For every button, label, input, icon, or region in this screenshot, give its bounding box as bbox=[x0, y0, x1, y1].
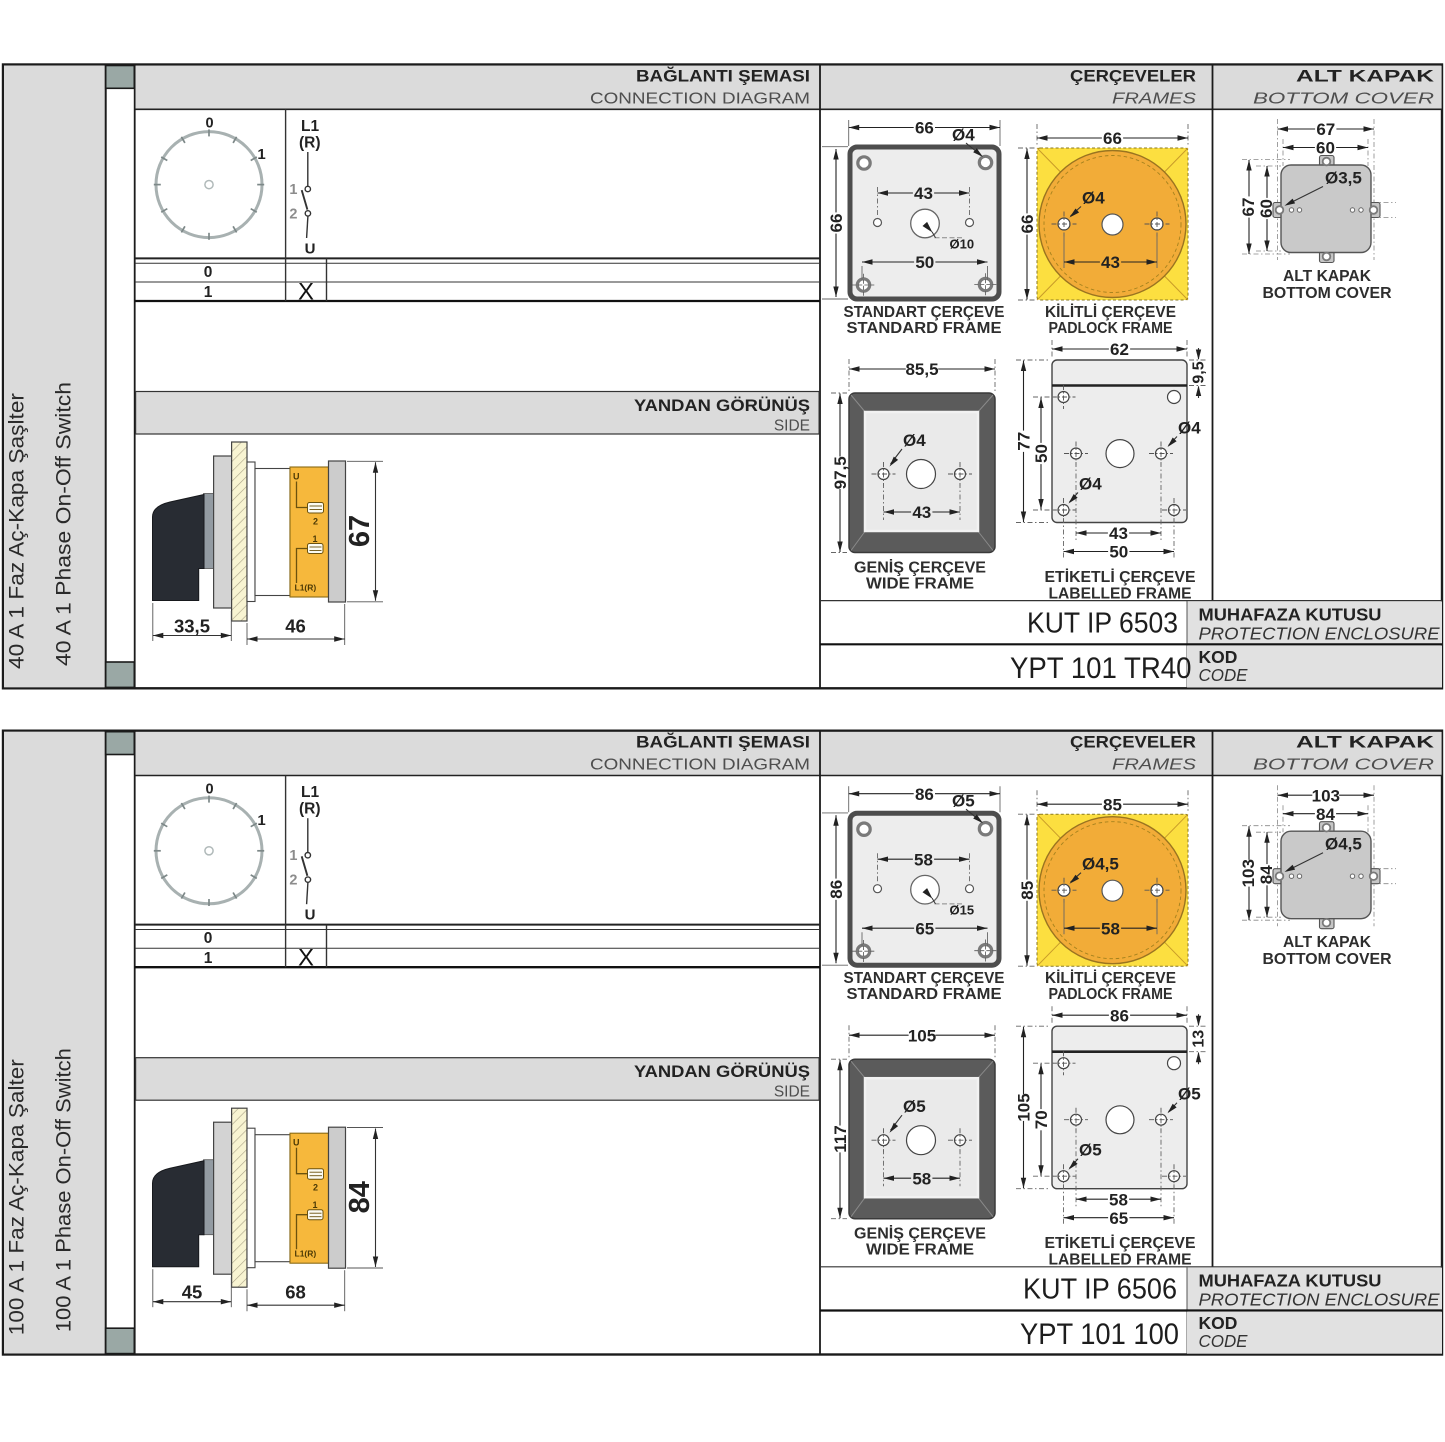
svg-text:YANDAN GÖRÜNÜŞ: YANDAN GÖRÜNÜŞ bbox=[634, 1062, 810, 1081]
svg-text:103: 103 bbox=[1312, 786, 1340, 805]
svg-text:GENİŞ ÇERÇEVE: GENİŞ ÇERÇEVE bbox=[854, 559, 986, 577]
svg-text:67: 67 bbox=[344, 515, 376, 547]
svg-text:ETİKETLİ ÇERÇEVE: ETİKETLİ ÇERÇEVE bbox=[1045, 1234, 1196, 1252]
svg-text:86: 86 bbox=[915, 785, 934, 804]
svg-text:STANDART ÇERÇEVE: STANDART ÇERÇEVE bbox=[844, 304, 1005, 321]
svg-text:84: 84 bbox=[1257, 865, 1276, 884]
svg-text:40 A 1 Faz Aç-Kapa Şaşlter: 40 A 1 Faz Aç-Kapa Şaşlter bbox=[5, 393, 29, 669]
svg-text:MUHAFAZA KUTUSU: MUHAFAZA KUTUSU bbox=[1199, 605, 1382, 625]
svg-text:U: U bbox=[293, 1138, 300, 1148]
svg-text:GENİŞ ÇERÇEVE: GENİŞ ÇERÇEVE bbox=[854, 1225, 986, 1243]
svg-text:BOTTOM COVER: BOTTOM COVER bbox=[1263, 285, 1392, 302]
svg-text:Ø5: Ø5 bbox=[903, 1097, 926, 1116]
svg-text:ALT KAPAK: ALT KAPAK bbox=[1283, 934, 1371, 951]
svg-text:84: 84 bbox=[344, 1181, 376, 1213]
svg-text:U: U bbox=[293, 472, 300, 482]
svg-text:1: 1 bbox=[289, 182, 297, 198]
svg-text:STANDARD FRAME: STANDARD FRAME bbox=[847, 986, 1002, 1003]
svg-text:60: 60 bbox=[1316, 139, 1335, 158]
svg-text:BAĞLANTI ŞEMASI: BAĞLANTI ŞEMASI bbox=[636, 733, 810, 752]
svg-text:2: 2 bbox=[289, 873, 297, 889]
svg-text:66: 66 bbox=[827, 214, 846, 233]
svg-text:CONNECTION DIAGRAM: CONNECTION DIAGRAM bbox=[590, 91, 810, 108]
svg-text:ÇERÇEVELER: ÇERÇEVELER bbox=[1070, 67, 1196, 86]
svg-text:PADLOCK FRAME: PADLOCK FRAME bbox=[1049, 986, 1173, 1003]
svg-text:62: 62 bbox=[1110, 340, 1129, 359]
svg-text:(R): (R) bbox=[299, 135, 321, 152]
svg-text:58: 58 bbox=[912, 1169, 931, 1188]
svg-text:1: 1 bbox=[257, 146, 265, 163]
svg-text:43: 43 bbox=[914, 184, 933, 203]
svg-text:Ø10: Ø10 bbox=[950, 237, 975, 252]
svg-text:117: 117 bbox=[831, 1125, 850, 1152]
svg-text:65: 65 bbox=[915, 919, 934, 938]
svg-text:105: 105 bbox=[1015, 1093, 1034, 1121]
svg-text:L1: L1 bbox=[301, 118, 319, 135]
svg-text:FRAMES: FRAMES bbox=[1112, 757, 1197, 774]
svg-text:YPT 101 100: YPT 101 100 bbox=[1020, 1318, 1179, 1351]
svg-text:85,5: 85,5 bbox=[905, 360, 938, 379]
svg-text:86: 86 bbox=[827, 880, 846, 899]
svg-text:KUT IP 6506: KUT IP 6506 bbox=[1023, 1274, 1177, 1306]
svg-text:PROTECTION ENCLOSURE: PROTECTION ENCLOSURE bbox=[1199, 624, 1440, 644]
svg-text:STANDARD FRAME: STANDARD FRAME bbox=[847, 320, 1002, 337]
svg-text:U: U bbox=[305, 907, 316, 924]
svg-text:KUT IP 6503: KUT IP 6503 bbox=[1027, 607, 1178, 639]
svg-text:67: 67 bbox=[1316, 120, 1335, 139]
svg-text:X: X bbox=[298, 279, 314, 306]
svg-text:65: 65 bbox=[1109, 1209, 1128, 1228]
svg-text:KOD: KOD bbox=[1199, 1313, 1238, 1333]
svg-text:ALT KAPAK: ALT KAPAK bbox=[1283, 268, 1371, 285]
svg-text:WIDE FRAME: WIDE FRAME bbox=[866, 576, 974, 593]
svg-text:77: 77 bbox=[1015, 432, 1034, 451]
svg-text:Ø5: Ø5 bbox=[952, 792, 975, 811]
svg-text:LABELLED FRAME: LABELLED FRAME bbox=[1049, 586, 1192, 603]
svg-text:84: 84 bbox=[1316, 805, 1335, 824]
svg-text:33,5: 33,5 bbox=[174, 616, 210, 637]
svg-text:Ø4: Ø4 bbox=[1082, 189, 1105, 208]
svg-text:1: 1 bbox=[312, 534, 317, 544]
svg-text:SIDE: SIDE bbox=[774, 418, 810, 435]
svg-text:Ø15: Ø15 bbox=[950, 903, 975, 918]
svg-text:YANDAN GÖRÜNÜŞ: YANDAN GÖRÜNÜŞ bbox=[634, 396, 810, 415]
svg-text:2: 2 bbox=[289, 207, 297, 223]
svg-text:58: 58 bbox=[1109, 1190, 1128, 1209]
svg-text:100 A 1 Faz Aç-Kapa Şalter: 100 A 1 Faz Aç-Kapa Şalter bbox=[5, 1059, 29, 1335]
svg-text:85: 85 bbox=[1018, 881, 1037, 900]
svg-text:67: 67 bbox=[1239, 198, 1258, 217]
svg-text:PADLOCK FRAME: PADLOCK FRAME bbox=[1049, 320, 1173, 337]
svg-text:58: 58 bbox=[914, 850, 933, 869]
svg-text:KİLİTLİ ÇERÇEVE: KİLİTLİ ÇERÇEVE bbox=[1045, 969, 1176, 987]
svg-text:CODE: CODE bbox=[1199, 1331, 1248, 1351]
svg-text:L1(R): L1(R) bbox=[295, 1249, 317, 1259]
svg-text:46: 46 bbox=[285, 616, 306, 637]
svg-text:ALT KAPAK: ALT KAPAK bbox=[1296, 67, 1435, 86]
svg-text:ALT KAPAK: ALT KAPAK bbox=[1296, 733, 1435, 752]
svg-text:BOTTOM COVER: BOTTOM COVER bbox=[1253, 91, 1434, 108]
svg-text:1: 1 bbox=[312, 1200, 317, 1210]
svg-text:2: 2 bbox=[313, 517, 318, 527]
svg-text:1: 1 bbox=[204, 950, 213, 967]
svg-text:FRAMES: FRAMES bbox=[1112, 91, 1197, 108]
svg-text:45: 45 bbox=[182, 1282, 203, 1303]
svg-text:66: 66 bbox=[1103, 129, 1122, 148]
svg-text:50: 50 bbox=[1032, 444, 1051, 463]
svg-text:Ø4,5: Ø4,5 bbox=[1082, 855, 1119, 874]
svg-text:50: 50 bbox=[1109, 543, 1128, 562]
svg-text:97,5: 97,5 bbox=[831, 456, 850, 489]
svg-text:13: 13 bbox=[1191, 1030, 1208, 1048]
svg-text:L1: L1 bbox=[301, 784, 319, 801]
svg-text:YPT 101 TR40: YPT 101 TR40 bbox=[1010, 652, 1192, 685]
svg-text:1: 1 bbox=[289, 848, 297, 864]
svg-text:0: 0 bbox=[205, 782, 213, 798]
svg-text:WIDE FRAME: WIDE FRAME bbox=[866, 1242, 974, 1259]
svg-text:U: U bbox=[305, 241, 316, 258]
svg-text:2: 2 bbox=[313, 1183, 318, 1193]
svg-text:L1(R): L1(R) bbox=[295, 583, 317, 593]
svg-text:68: 68 bbox=[285, 1282, 306, 1303]
svg-text:86: 86 bbox=[1110, 1006, 1129, 1025]
svg-text:70: 70 bbox=[1032, 1110, 1051, 1129]
svg-text:LABELLED FRAME: LABELLED FRAME bbox=[1049, 1252, 1192, 1269]
svg-text:0: 0 bbox=[205, 115, 213, 131]
svg-text:X: X bbox=[298, 945, 314, 972]
svg-text:KİLİTLİ ÇERÇEVE: KİLİTLİ ÇERÇEVE bbox=[1045, 303, 1176, 321]
svg-text:0: 0 bbox=[204, 930, 213, 947]
svg-text:60: 60 bbox=[1257, 199, 1276, 218]
svg-text:ETİKETLİ ÇERÇEVE: ETİKETLİ ÇERÇEVE bbox=[1045, 568, 1196, 586]
svg-text:66: 66 bbox=[915, 119, 934, 138]
svg-text:58: 58 bbox=[1101, 919, 1120, 938]
svg-text:100 A 1 Phase On-Off Switch: 100 A 1 Phase On-Off Switch bbox=[52, 1048, 76, 1332]
svg-text:BOTTOM COVER: BOTTOM COVER bbox=[1253, 757, 1434, 774]
svg-text:1: 1 bbox=[204, 284, 213, 301]
svg-text:PROTECTION ENCLOSURE: PROTECTION ENCLOSURE bbox=[1199, 1290, 1440, 1310]
svg-text:MUHAFAZA KUTUSU: MUHAFAZA KUTUSU bbox=[1199, 1271, 1382, 1291]
svg-text:SIDE: SIDE bbox=[774, 1084, 810, 1101]
svg-text:CODE: CODE bbox=[1199, 665, 1248, 685]
svg-text:43: 43 bbox=[1109, 524, 1128, 543]
svg-text:105: 105 bbox=[908, 1026, 936, 1045]
svg-text:40 A 1 Phase On-Off Switch: 40 A 1 Phase On-Off Switch bbox=[52, 382, 76, 666]
svg-text:0: 0 bbox=[204, 264, 213, 281]
svg-text:Ø4: Ø4 bbox=[903, 431, 926, 450]
svg-text:Ø4,5: Ø4,5 bbox=[1325, 835, 1362, 854]
svg-text:Ø5: Ø5 bbox=[1178, 1085, 1201, 1104]
svg-text:ÇERÇEVELER: ÇERÇEVELER bbox=[1070, 733, 1196, 752]
svg-text:Ø4: Ø4 bbox=[952, 126, 975, 145]
svg-text:Ø5: Ø5 bbox=[1079, 1141, 1102, 1160]
svg-text:9,5: 9,5 bbox=[1191, 361, 1208, 383]
svg-text:43: 43 bbox=[912, 503, 931, 522]
svg-text:(R): (R) bbox=[299, 801, 321, 818]
svg-text:50: 50 bbox=[915, 253, 934, 272]
svg-text:CONNECTION DIAGRAM: CONNECTION DIAGRAM bbox=[590, 757, 810, 774]
svg-text:43: 43 bbox=[1101, 253, 1120, 272]
svg-text:85: 85 bbox=[1103, 795, 1122, 814]
svg-text:Ø3,5: Ø3,5 bbox=[1325, 169, 1362, 188]
svg-text:STANDART ÇERÇEVE: STANDART ÇERÇEVE bbox=[844, 970, 1005, 987]
svg-text:BAĞLANTI ŞEMASI: BAĞLANTI ŞEMASI bbox=[636, 67, 810, 86]
svg-text:Ø4: Ø4 bbox=[1079, 475, 1102, 494]
svg-text:BOTTOM COVER: BOTTOM COVER bbox=[1263, 951, 1392, 968]
svg-text:1: 1 bbox=[257, 812, 265, 829]
svg-text:66: 66 bbox=[1018, 215, 1037, 234]
svg-text:Ø4: Ø4 bbox=[1178, 419, 1201, 438]
svg-text:103: 103 bbox=[1239, 859, 1258, 887]
svg-text:KOD: KOD bbox=[1199, 647, 1238, 667]
